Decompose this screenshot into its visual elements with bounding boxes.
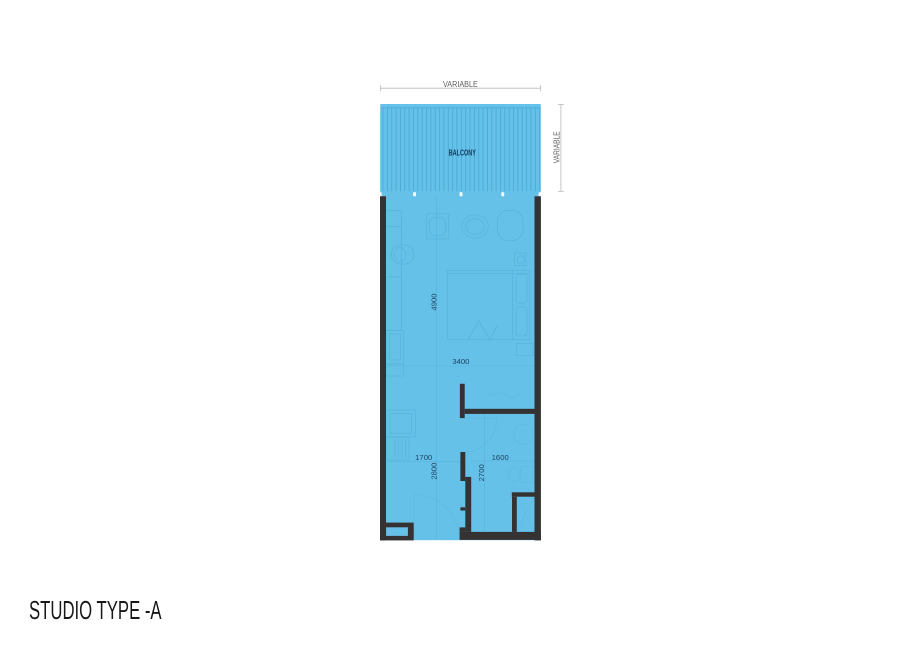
svg-text:STUDIO TYPE -A: STUDIO TYPE -A	[29, 597, 162, 625]
svg-text:2800: 2800	[430, 463, 439, 480]
svg-text:BALCONY: BALCONY	[449, 148, 477, 157]
svg-text:1600: 1600	[492, 453, 509, 462]
svg-text:1700: 1700	[415, 453, 432, 462]
svg-text:3400: 3400	[452, 357, 469, 366]
svg-text:VARIABLE: VARIABLE	[443, 80, 478, 89]
svg-text:4900: 4900	[430, 293, 439, 310]
svg-text:VARIABLE: VARIABLE	[552, 131, 561, 163]
svg-text:2700: 2700	[477, 464, 486, 481]
